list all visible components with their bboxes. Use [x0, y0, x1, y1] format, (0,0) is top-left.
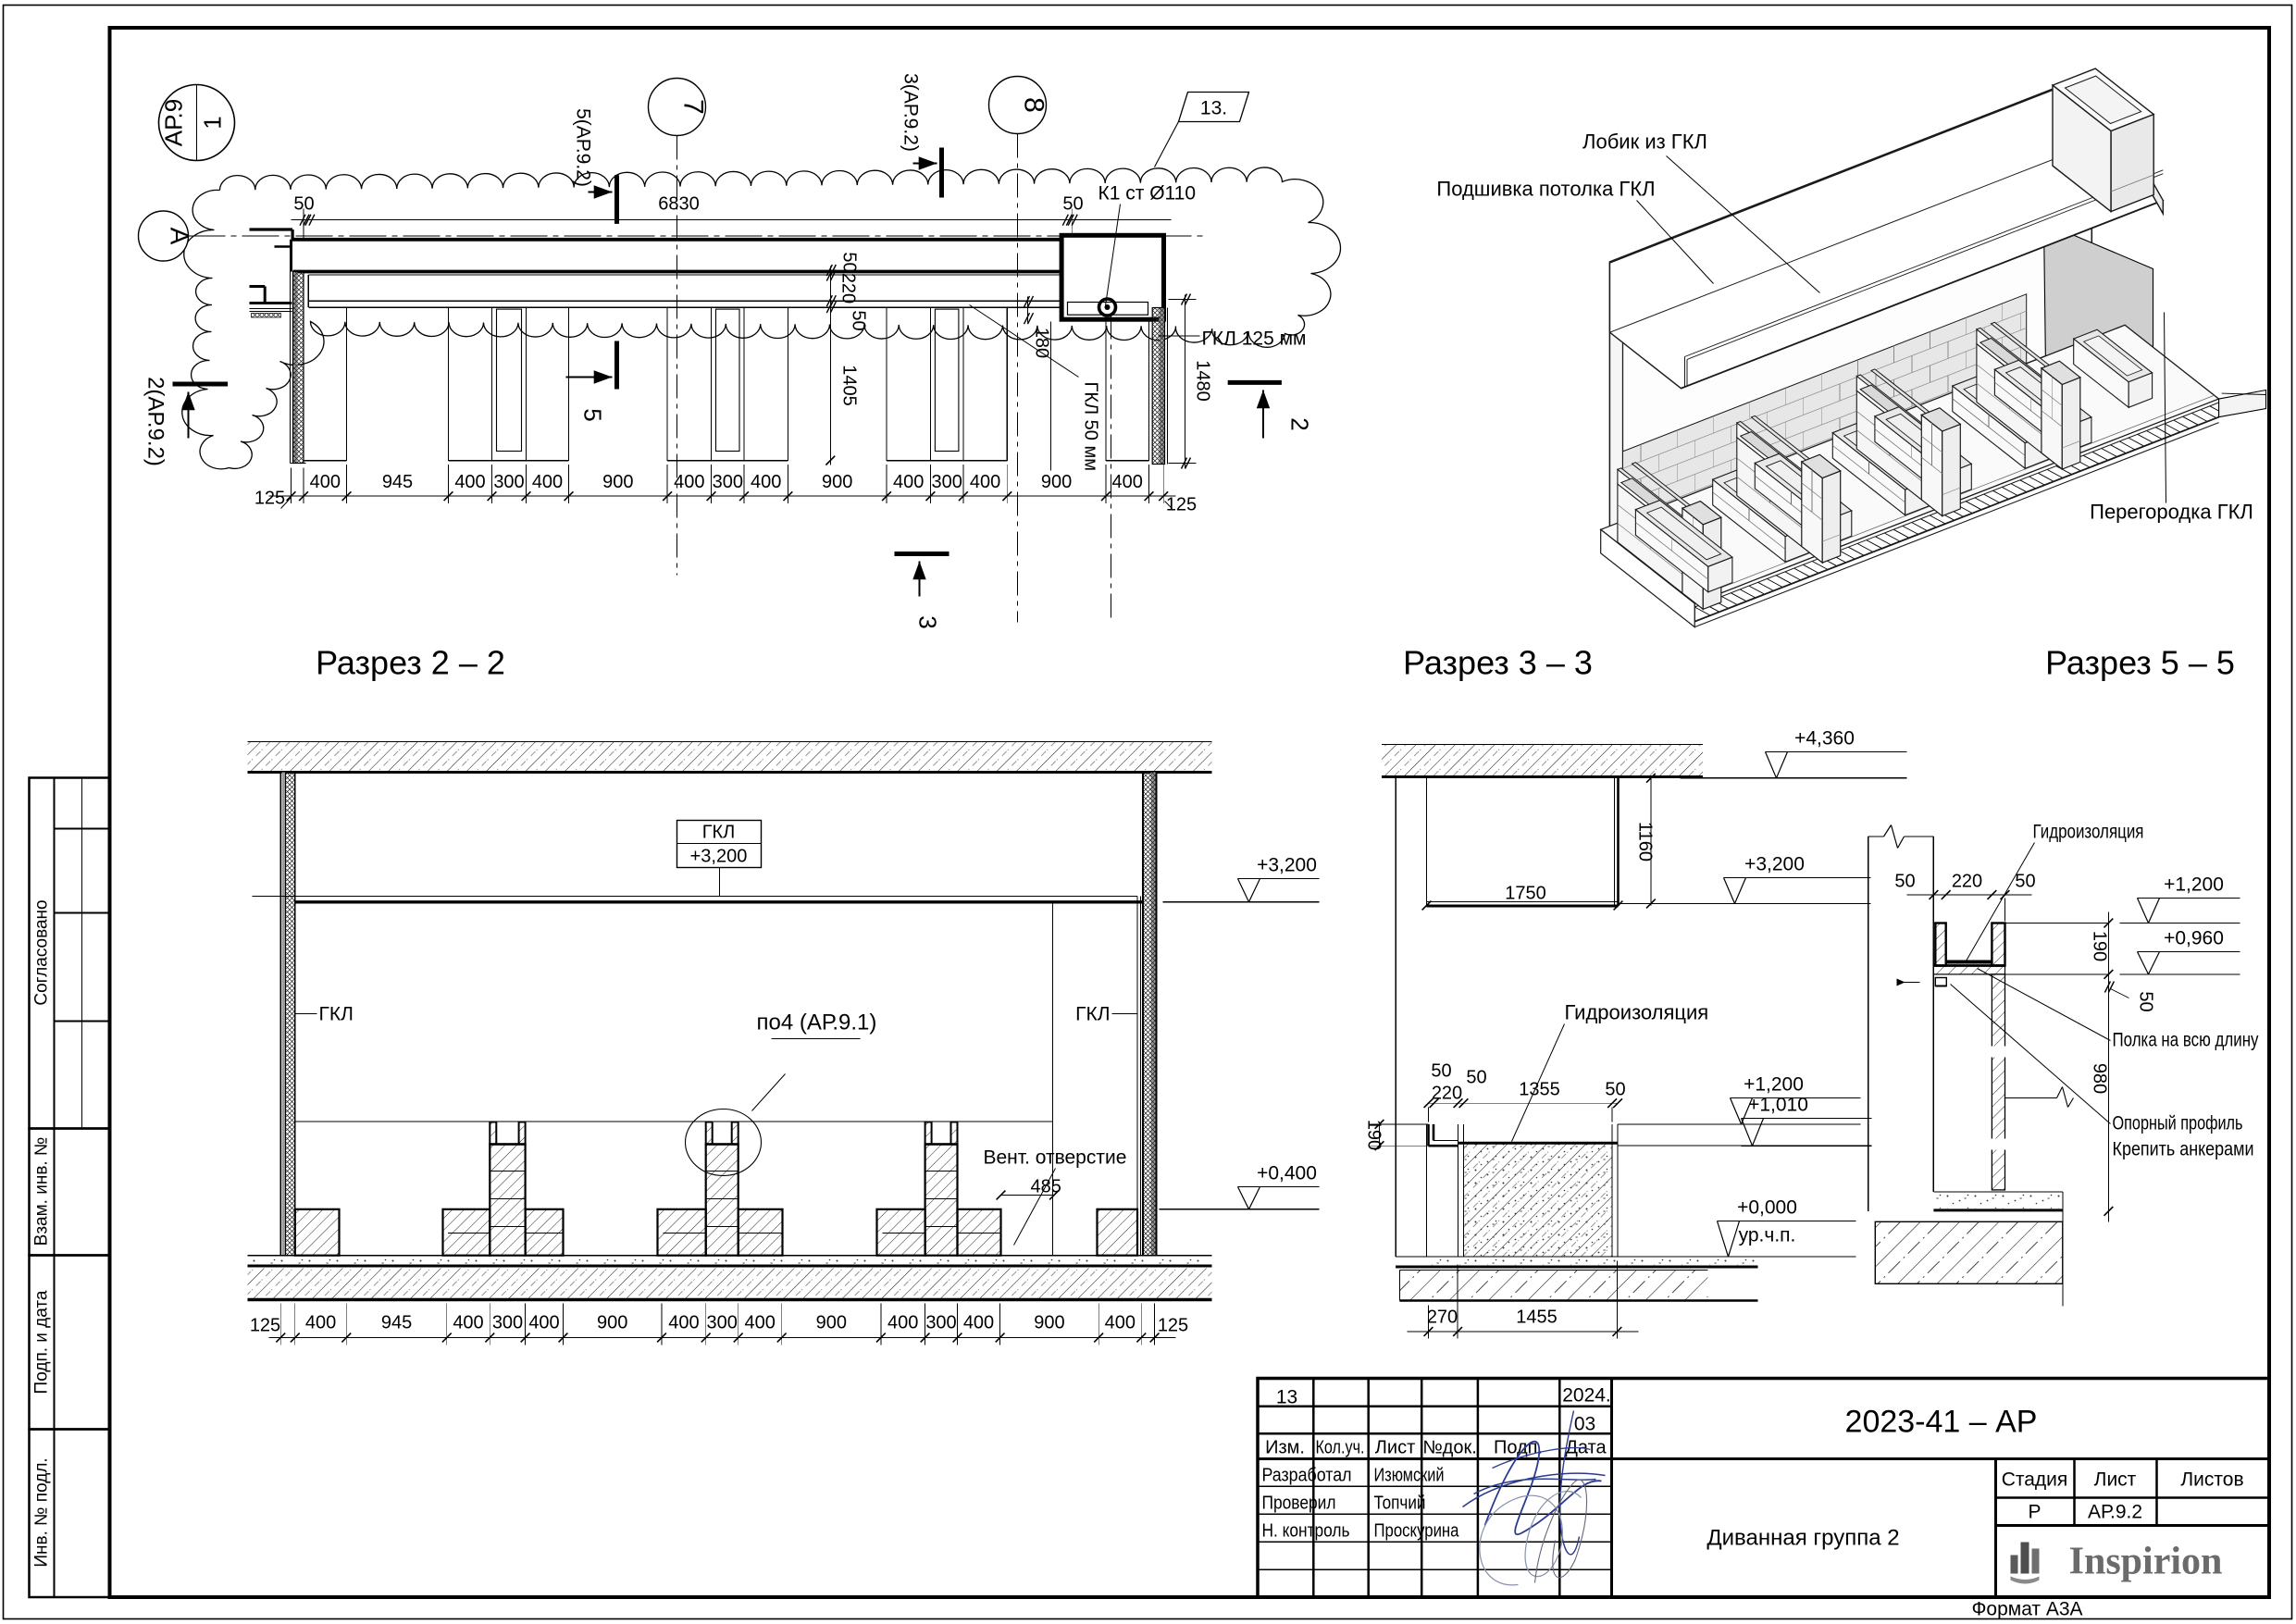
- svg-text:Полка на всю длину: Полка на всю длину: [2113, 1030, 2259, 1051]
- svg-text:1160: 1160: [1635, 822, 1656, 862]
- svg-text:900: 900: [816, 1313, 847, 1333]
- svg-text:3: 3: [914, 615, 942, 628]
- svg-text:5(АР.9.2): 5(АР.9.2): [573, 108, 594, 187]
- svg-text:Р: Р: [2028, 1502, 2041, 1523]
- svg-text:220: 220: [838, 273, 859, 304]
- svg-text:50: 50: [1466, 1068, 1486, 1088]
- svg-text:50: 50: [1062, 194, 1083, 215]
- svg-text:2(АР.9.2): 2(АР.9.2): [143, 377, 168, 466]
- svg-text:1480: 1480: [1193, 360, 1213, 402]
- svg-text:180: 180: [1032, 328, 1052, 358]
- svg-text:АР.9: АР.9: [160, 99, 188, 146]
- svg-text:Лист: Лист: [2094, 1469, 2137, 1491]
- svg-text:400: 400: [1105, 1313, 1136, 1333]
- svg-text:+1,200: +1,200: [1744, 1074, 1804, 1096]
- svg-text:ГКЛ: ГКЛ: [702, 823, 736, 843]
- svg-text:900: 900: [1041, 472, 1072, 492]
- svg-text:ГКЛ: ГКЛ: [319, 1004, 354, 1025]
- svg-text:300: 300: [925, 1313, 956, 1333]
- svg-text:+3,200: +3,200: [1257, 855, 1317, 876]
- svg-text:270: 270: [1427, 1308, 1458, 1328]
- svg-text:ГКЛ 50 мм: ГКЛ 50 мм: [1081, 382, 1101, 471]
- svg-text:13: 13: [1276, 1387, 1297, 1408]
- svg-text:900: 900: [1034, 1313, 1064, 1333]
- svg-text:400: 400: [970, 472, 1000, 492]
- svg-text:1: 1: [199, 116, 227, 129]
- svg-text:400: 400: [453, 1313, 483, 1333]
- svg-text:50: 50: [1894, 872, 1915, 892]
- svg-text:400: 400: [454, 472, 485, 492]
- svg-text:Подп. и дата: Подп. и дата: [32, 1290, 52, 1394]
- svg-text:Гидроизоляция: Гидроизоляция: [1565, 1001, 1709, 1024]
- svg-text:Вент. отверстие: Вент. отверстие: [984, 1147, 1127, 1169]
- svg-text:400: 400: [963, 1313, 994, 1333]
- svg-text:50: 50: [2015, 872, 2035, 892]
- svg-text:945: 945: [382, 472, 413, 492]
- svg-text:2: 2: [1286, 417, 1314, 430]
- svg-text:ГКЛ 125 мм: ГКЛ 125 мм: [1202, 329, 1307, 350]
- svg-text:Крепить анкерами: Крепить анкерами: [2113, 1139, 2254, 1160]
- svg-text:7: 7: [678, 99, 709, 115]
- svg-text:50: 50: [1605, 1080, 1625, 1100]
- svg-text:Перегородка ГКЛ: Перегородка ГКЛ: [2090, 501, 2253, 524]
- svg-text:125: 125: [1166, 495, 1197, 515]
- svg-text:Кол.уч.: Кол.уч.: [1316, 1438, 1365, 1458]
- svg-text:Диванная группа 2: Диванная группа 2: [1706, 1526, 1899, 1551]
- svg-text:190: 190: [1364, 1120, 1384, 1150]
- svg-text:+0,960: +0,960: [2164, 928, 2224, 949]
- svg-text:1750: 1750: [1505, 884, 1546, 904]
- svg-text:125: 125: [1158, 1316, 1188, 1336]
- svg-text:ГКЛ: ГКЛ: [1075, 1004, 1110, 1025]
- svg-text:Inspirion: Inspirion: [2069, 1541, 2223, 1583]
- svg-text:50: 50: [839, 252, 860, 272]
- svg-text:220: 220: [1952, 872, 1982, 892]
- svg-text:ур.ч.п.: ур.ч.п.: [1739, 1225, 1796, 1246]
- svg-text:400: 400: [310, 472, 341, 492]
- svg-text:5: 5: [579, 408, 607, 421]
- svg-text:+1,200: +1,200: [2164, 874, 2224, 896]
- svg-text:50: 50: [2136, 991, 2156, 1011]
- svg-text:900: 900: [597, 1313, 627, 1333]
- svg-text:Подшивка потолка ГКЛ: Подшивка потолка ГКЛ: [1436, 178, 1655, 201]
- svg-text:400: 400: [751, 472, 781, 492]
- svg-text:900: 900: [602, 472, 633, 492]
- svg-text:№док.: №док.: [1422, 1438, 1477, 1458]
- svg-text:300: 300: [492, 1313, 523, 1333]
- svg-text:1405: 1405: [839, 365, 860, 406]
- svg-text:400: 400: [893, 472, 924, 492]
- svg-text:+3,200: +3,200: [690, 847, 748, 867]
- svg-text:400: 400: [305, 1313, 336, 1333]
- svg-text:400: 400: [887, 1313, 918, 1333]
- svg-text:Разработал: Разработал: [1262, 1466, 1352, 1486]
- svg-text:+3,200: +3,200: [1744, 854, 1805, 875]
- svg-text:220: 220: [1432, 1084, 1462, 1104]
- svg-text:400: 400: [674, 472, 704, 492]
- svg-text:50: 50: [849, 310, 869, 330]
- svg-text:по4 (АР.9.1): по4 (АР.9.1): [757, 1010, 877, 1035]
- svg-text:300: 300: [932, 472, 962, 492]
- svg-text:Формат А3А: Формат А3А: [1971, 1599, 2082, 1620]
- svg-text:+1,010: +1,010: [1748, 1095, 1808, 1116]
- svg-text:980: 980: [2090, 1063, 2110, 1094]
- svg-text:13.: 13.: [1200, 98, 1227, 119]
- svg-text:Согласовано: Согласовано: [32, 899, 52, 1005]
- svg-text:+0,000: +0,000: [1737, 1197, 1797, 1219]
- svg-text:Листов: Листов: [2180, 1469, 2243, 1491]
- svg-text:Стадия: Стадия: [2002, 1469, 2068, 1491]
- svg-text:400: 400: [745, 1313, 776, 1333]
- svg-text:Инв. № подл.: Инв. № подл.: [32, 1457, 52, 1567]
- svg-text:945: 945: [381, 1313, 412, 1333]
- svg-text:900: 900: [822, 472, 852, 492]
- svg-text:300: 300: [707, 1313, 738, 1333]
- svg-text:+0,400: +0,400: [1257, 1163, 1317, 1184]
- svg-text:Лист: Лист: [1375, 1438, 1415, 1458]
- svg-text:03: 03: [1574, 1414, 1595, 1435]
- svg-text:Разрез 3 – 3: Разрез 3 – 3: [1403, 644, 1593, 682]
- svg-text:+4,360: +4,360: [1794, 728, 1855, 750]
- svg-text:Разрез 2 – 2: Разрез 2 – 2: [316, 644, 505, 682]
- svg-text:Проверил: Проверил: [1262, 1494, 1336, 1514]
- svg-text:1355: 1355: [1519, 1080, 1560, 1100]
- svg-text:Опорный профиль: Опорный профиль: [2113, 1113, 2243, 1134]
- svg-text:Топчий: Топчий: [1374, 1494, 1426, 1514]
- svg-text:3(АР.9.2): 3(АР.9.2): [900, 73, 922, 152]
- svg-text:125: 125: [250, 1316, 280, 1336]
- svg-text:Н. контроль: Н. контроль: [1262, 1521, 1350, 1542]
- svg-text:6830: 6830: [658, 194, 700, 215]
- svg-text:400: 400: [528, 1313, 559, 1333]
- svg-text:2024.: 2024.: [1562, 1385, 1611, 1407]
- svg-text:АР.9.2: АР.9.2: [2088, 1502, 2142, 1523]
- svg-text:300: 300: [493, 472, 524, 492]
- svg-text:400: 400: [532, 472, 563, 492]
- svg-text:Разрез 5 – 5: Разрез 5 – 5: [2045, 644, 2235, 682]
- svg-text:125: 125: [254, 489, 285, 509]
- svg-text:Изюмский: Изюмский: [1374, 1466, 1445, 1486]
- svg-text:Лобик из ГКЛ: Лобик из ГКЛ: [1582, 130, 1707, 154]
- svg-text:300: 300: [713, 472, 743, 492]
- svg-text:50: 50: [293, 194, 314, 215]
- svg-text:Гидроизоляция: Гидроизоляция: [2033, 822, 2144, 843]
- svg-text:50: 50: [1431, 1061, 1451, 1082]
- svg-text:190: 190: [2090, 931, 2110, 961]
- svg-text:К1 ст Ø110: К1 ст Ø110: [1098, 183, 1197, 205]
- svg-text:Проскурина: Проскурина: [1374, 1521, 1460, 1542]
- svg-text:8: 8: [1019, 97, 1049, 113]
- svg-text:400: 400: [1112, 472, 1143, 492]
- svg-text:Взам. инв. №: Взам. инв. №: [32, 1137, 52, 1246]
- svg-text:1455: 1455: [1516, 1308, 1558, 1328]
- svg-text:Изм.: Изм.: [1265, 1438, 1305, 1458]
- svg-text:2023-41 – АР: 2023-41 – АР: [1845, 1405, 2038, 1440]
- svg-text:400: 400: [668, 1313, 699, 1333]
